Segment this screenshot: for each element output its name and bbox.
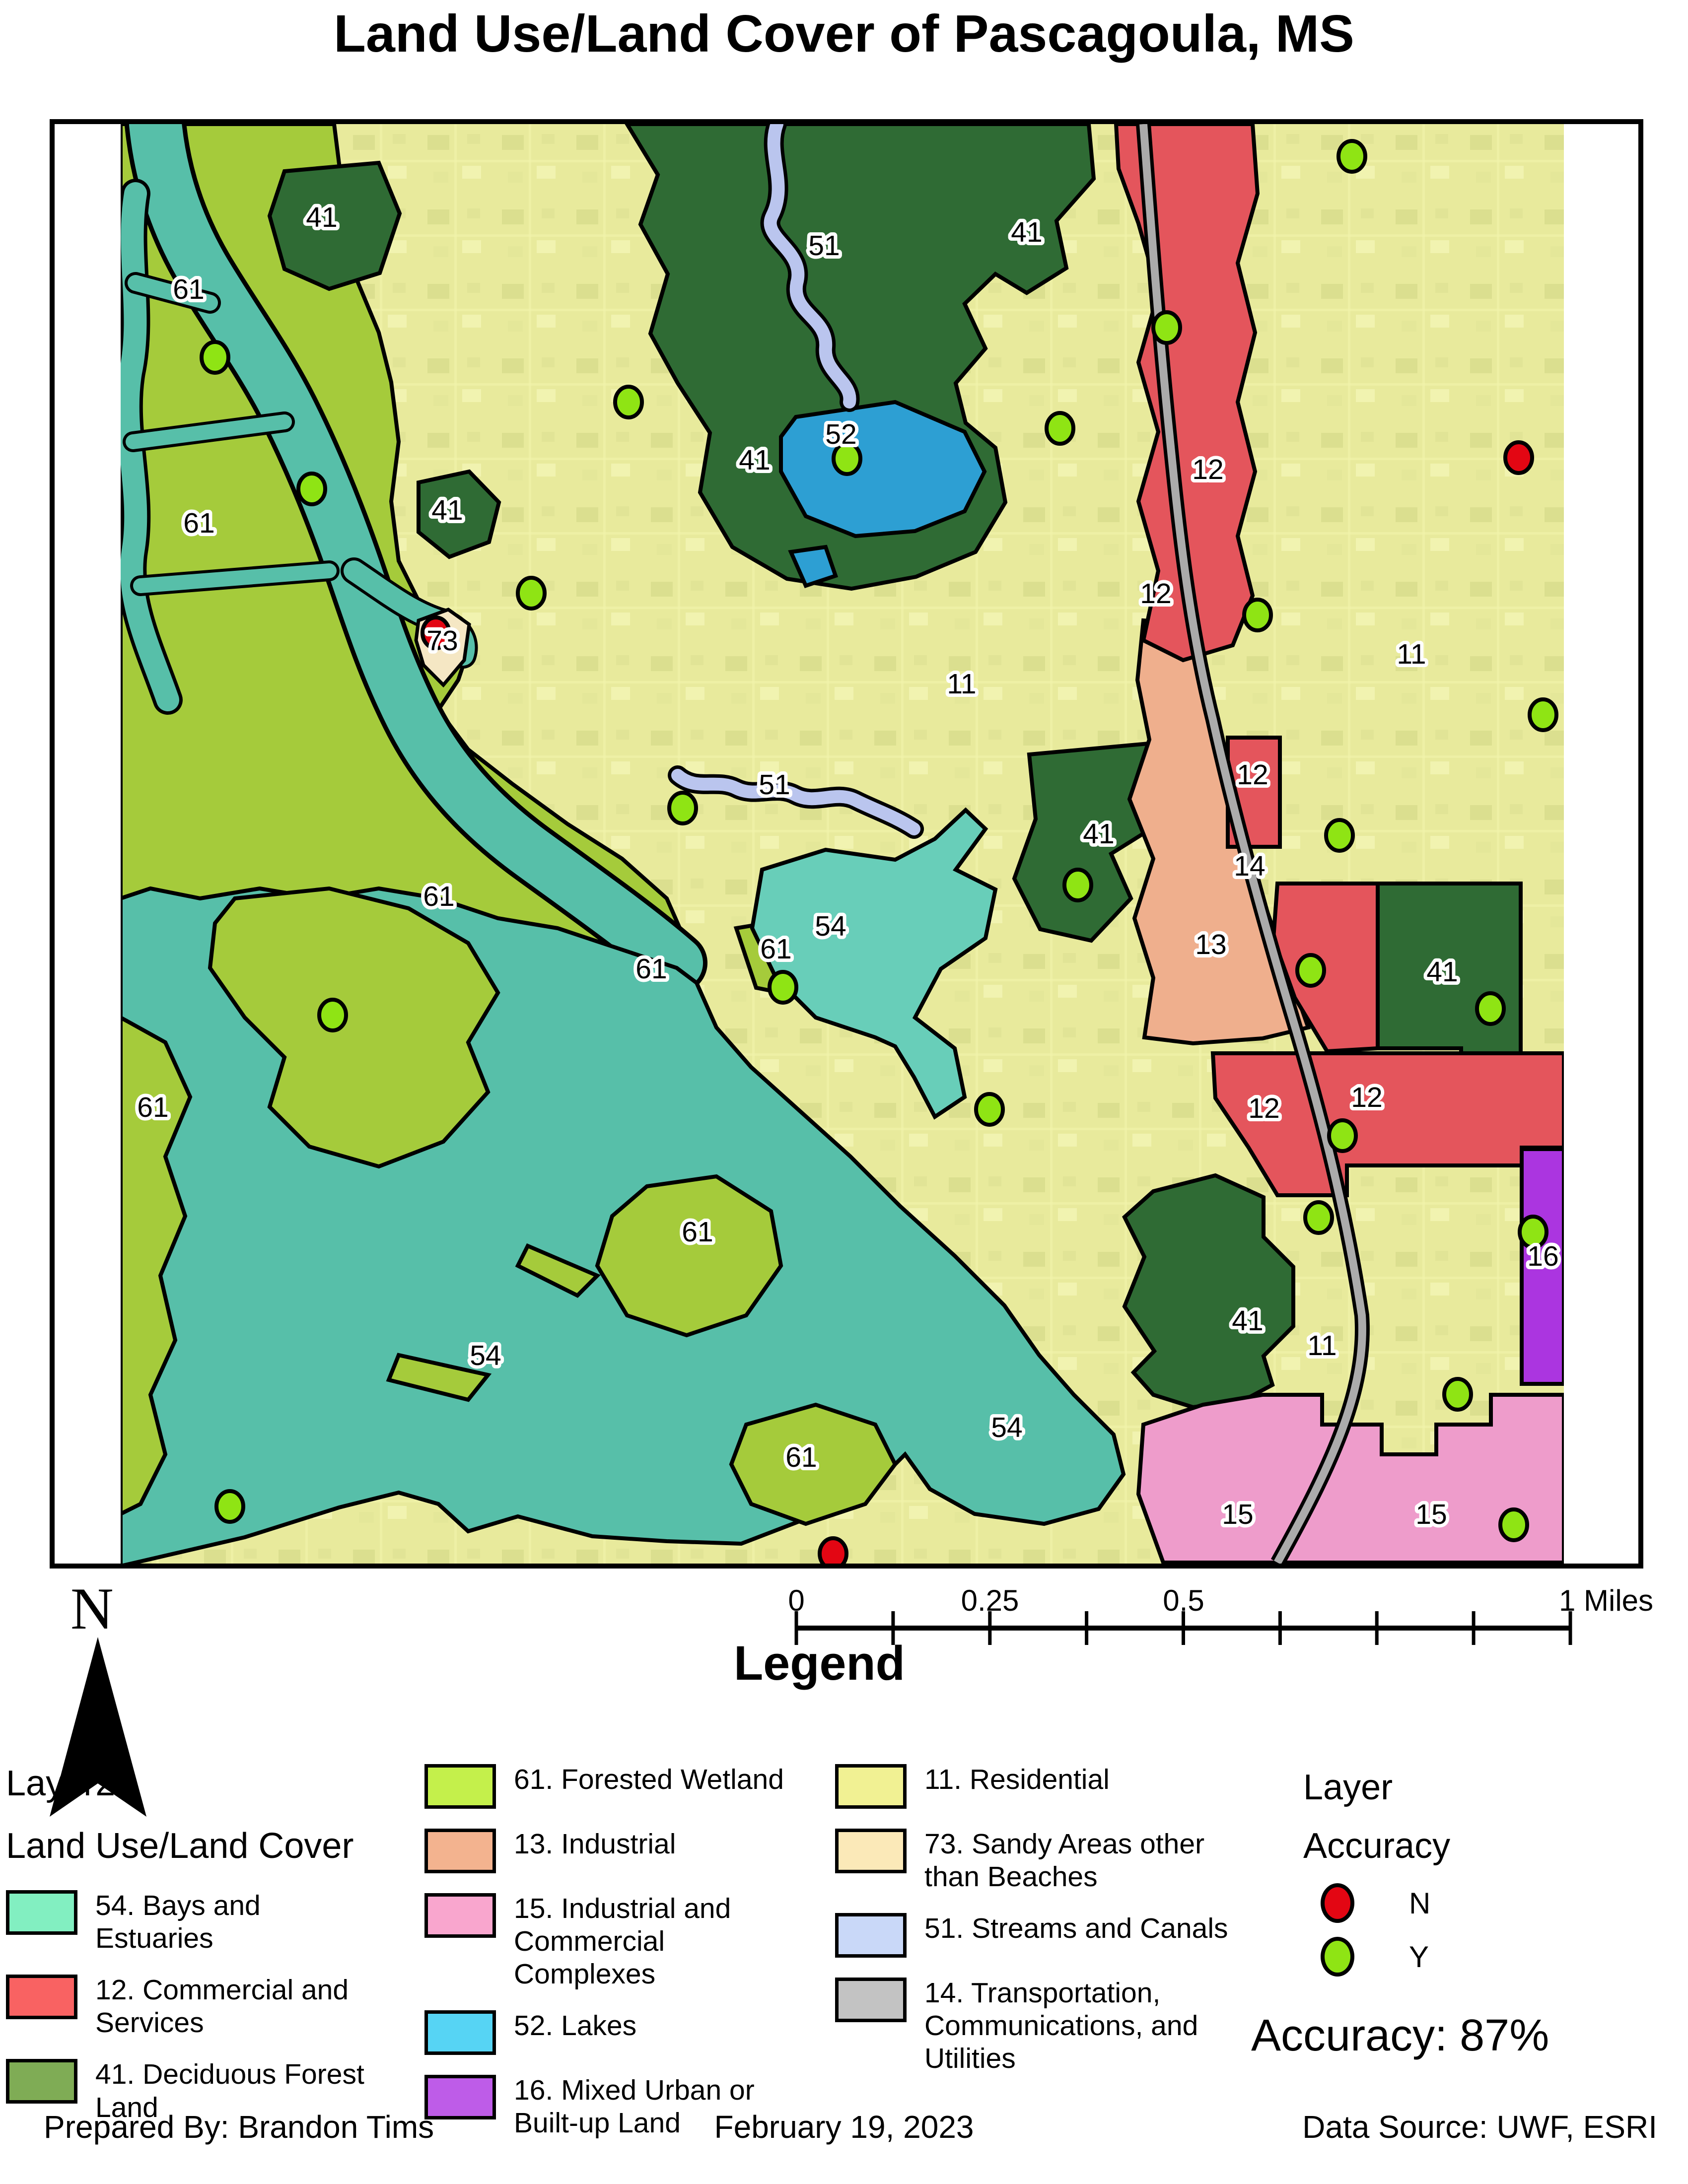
footer-prepared-by: Prepared By: Brandon Tims [44,2109,434,2145]
legend-column-2: 61. Forested Wetland13. Industrial15. In… [424,1763,817,2159]
region-label-41: 41 [1083,818,1114,850]
legend-swatch [6,1890,77,1935]
region-label-41: 41 [739,444,770,476]
accuracy-point-Y [1305,1202,1332,1233]
region-label-16: 16 [1527,1240,1558,1272]
accuracy-point-Y [976,1094,1003,1125]
region-label-41: 41 [306,202,337,233]
legend-swatch [424,1893,496,1938]
accuracy-legend-item: Y [1251,1937,1628,1977]
legend-swatch [424,2075,496,2119]
map-frame: 4161514112126141415273111151411214615461… [50,119,1643,1569]
accuracy-point-Y [1500,1509,1527,1540]
accuracy-point-Y [1244,600,1271,630]
legend-label: 14. Transportation, Communications, and … [924,1977,1232,2075]
region-label-12: 12 [1140,578,1171,610]
legend-item: 54. Bays and Estuaries [6,1889,413,1955]
legend-item: 13. Industrial [424,1828,817,1873]
legend-item: 11. Residential [835,1763,1232,1809]
region-label-73: 73 [426,625,458,657]
legend-label: 54. Bays and Estuaries [95,1889,373,1955]
region-label-12: 12 [1351,1082,1382,1113]
legend-column-accuracy: Layer Accuracy NY Accuracy: 87% [1251,1767,1628,2061]
legend-label: 51. Streams and Canals [924,1912,1228,1945]
region-label-61: 61 [785,1441,817,1473]
legend-label: 73. Sandy Areas other than Beaches [924,1828,1232,1893]
legend-item: 14. Transportation, Communications, and … [835,1977,1232,2075]
accuracy-legend-item: N [1251,1883,1628,1923]
accuracy-point-Y [319,1000,346,1030]
accuracy-point-Y [1530,699,1556,730]
north-label: N [70,1574,114,1643]
region-label-41: 41 [1011,216,1042,248]
legend-label: 15. Industrial and Commercial Complexes [514,1892,807,1990]
accuracy-point-Y [1047,413,1073,444]
accuracy-point-Y [1153,312,1180,343]
region-label-51: 51 [808,230,840,262]
legend-items: 54. Bays and Estuaries12. Commercial and… [6,1889,413,2143]
legend-label: 11. Residential [924,1763,1110,1796]
legend-item: 73. Sandy Areas other than Beaches [835,1828,1232,1893]
region-label-61: 61 [137,1092,168,1123]
accuracy-point-Y [669,793,696,823]
region-label-12: 12 [1237,759,1268,791]
region-label-52: 52 [825,418,856,450]
accuracy-dot-icon [1321,1937,1354,1977]
legend-swatch [835,1829,907,1873]
legend-item: 52. Lakes [424,2009,817,2055]
region-label-54: 54 [470,1340,501,1371]
accuracy-point-Y [1064,870,1091,900]
legend-item: 12. Commercial and Services [6,1974,413,2039]
accuracy-dot-icon [1321,1883,1354,1923]
region-label-11: 11 [947,668,976,700]
accuracy-point-Y [1329,1120,1356,1151]
accuracy-items: NY [1251,1883,1628,1990]
accuracy-point-Y [1297,955,1324,986]
region-label-13: 13 [1195,929,1226,960]
accuracy-point-Y [615,387,642,417]
page: Land Use/Land Cover of Pascagoula, MS [0,0,1688,2184]
legend-item: 61. Forested Wetland [424,1763,817,1809]
layer2-name: Layer2 [6,1763,413,1804]
footer-data-source: Data Source: UWF, ESRI [1302,2109,1657,2145]
region-label-61: 61 [760,933,791,965]
accuracy-point-Y [1338,141,1365,172]
legend-swatch [6,2059,77,2104]
legend-swatch [835,1764,907,1809]
accuracy-point-Y [216,1491,243,1522]
region-label-15: 15 [1222,1499,1253,1530]
legend-heading: Legend [734,1636,905,1691]
accuracy-point-Y [298,474,325,504]
region-label-61: 61 [183,507,214,539]
layer2-title: Land Use/Land Cover [6,1826,413,1866]
region-label-12: 12 [1248,1092,1279,1124]
legend-item: 51. Streams and Canals [835,1912,1232,1958]
legend-swatch [835,1978,907,2022]
region-label-54: 54 [991,1412,1022,1443]
region-label-61: 61 [173,273,204,305]
map-canvas: 4161514112126141415273111151411214615461… [121,124,1564,1564]
accuracy-layer-name: Layer [1251,1767,1628,1808]
region-label-51: 51 [759,769,790,801]
region-label-61: 61 [682,1216,713,1248]
legend-swatch [424,1764,496,1809]
accuracy-point-N [1505,442,1532,473]
legend-item: 15. Industrial and Commercial Complexes [424,1892,817,1990]
legend-column-1: Layer2 Land Use/Land Cover 54. Bays and … [6,1763,413,2143]
region-label-61: 61 [423,881,454,912]
map-title: Land Use/Land Cover of Pascagoula, MS [334,4,1354,64]
region-label-54: 54 [815,910,846,942]
legend-swatch [6,1975,77,2019]
region-label-15: 15 [1415,1499,1447,1530]
accuracy-point-Y [1444,1379,1471,1410]
accuracy-summary: Accuracy: 87% [1251,2010,1628,2061]
accuracy-point-Y [770,972,796,1003]
region-label-14: 14 [1234,850,1265,882]
accuracy-point-Y [518,578,545,609]
region-label-61: 61 [635,953,667,985]
legend-label: 61. Forested Wetland [514,1763,784,1796]
region-label-41: 41 [1426,956,1458,988]
legend-swatch [424,2010,496,2055]
legend-swatch [835,1913,907,1958]
region-label-41: 41 [1232,1305,1263,1337]
accuracy-point-Y [1326,820,1353,851]
accuracy-dot-label: Y [1409,1940,1429,1974]
legend-label: 12. Commercial and Services [95,1974,373,2039]
region-label-12: 12 [1192,454,1223,485]
accuracy-point-N [820,1538,846,1564]
accuracy-point-Y [202,342,228,373]
legend-column-3: 11. Residential73. Sandy Areas other tha… [835,1763,1232,2094]
legend-label: 13. Industrial [514,1828,676,1860]
legend-label: 52. Lakes [514,2009,636,2042]
accuracy-dot-label: N [1409,1886,1430,1920]
footer-date: February 19, 2023 [714,2109,974,2145]
region-label-11: 11 [1307,1330,1336,1362]
legend-swatch [424,1829,496,1873]
accuracy-layer-title: Accuracy [1251,1826,1628,1866]
region-label-41: 41 [431,494,463,526]
region-label-11: 11 [1397,638,1426,670]
accuracy-point-Y [1477,993,1504,1024]
